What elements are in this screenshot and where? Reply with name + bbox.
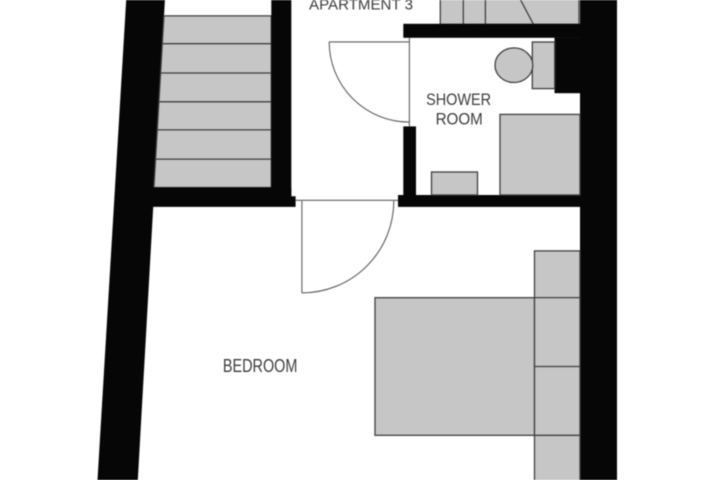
svg-text:SHOWER: SHOWER [426, 90, 491, 109]
svg-text:ROOM: ROOM [436, 111, 483, 129]
svg-text:APARTMENT 3: APARTMENT 3 [309, 0, 413, 13]
svg-text:BEDROOM: BEDROOM [223, 355, 298, 376]
